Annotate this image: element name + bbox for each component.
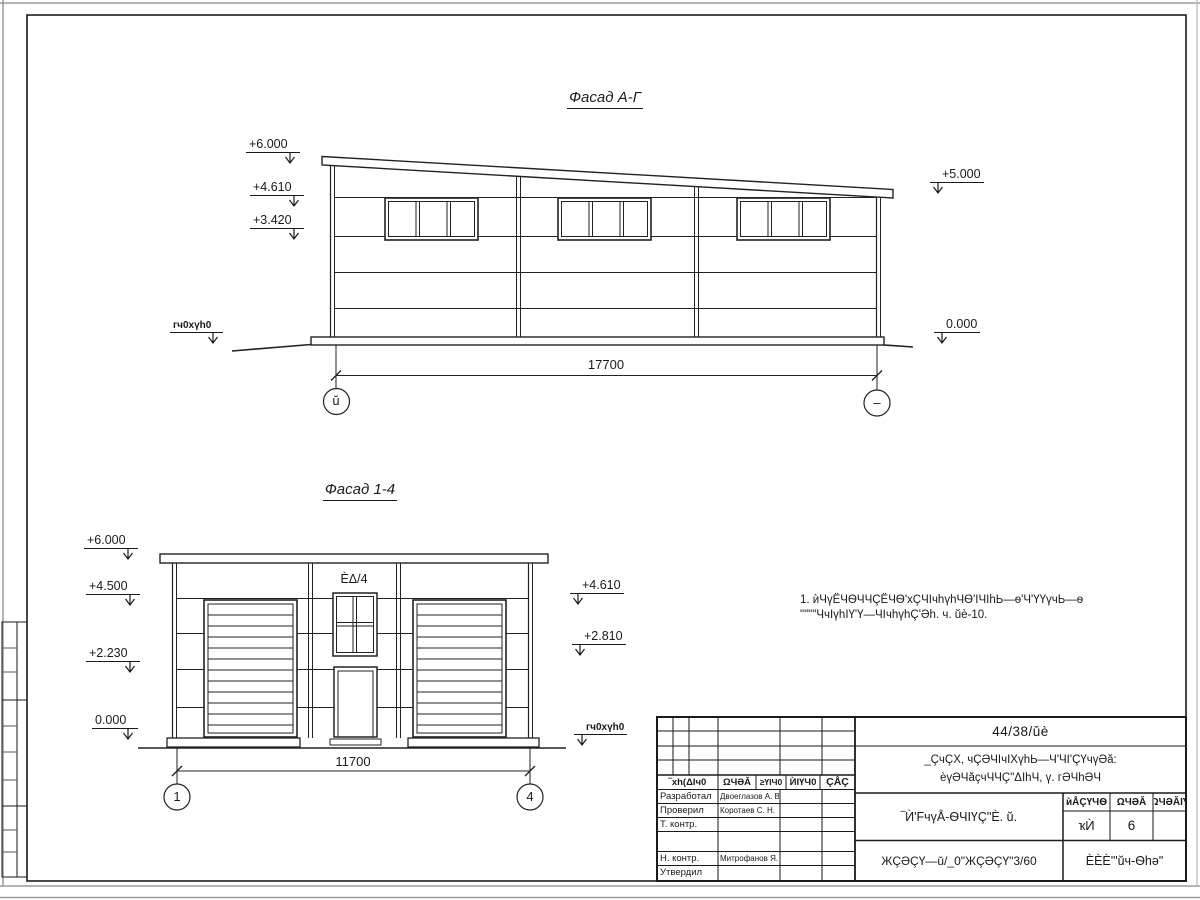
elevation-value: +4.610 <box>570 578 624 594</box>
tb-col-header-1: ΩЧӘĂ <box>719 775 755 789</box>
stadia-value-sheets <box>1154 811 1185 839</box>
elevation-mark: +4.500 <box>86 579 140 595</box>
tb-name-5 <box>720 866 779 879</box>
general-note: 1. ѝЧүЁЧѲЧЧÇЁЧѲ'хÇЧІчhүhЧѲ'ІЧІhЬ—ѳ'Ч'ҮҮү… <box>800 593 1083 623</box>
facade-bottom-title-text: Фасад 1-4 <box>323 481 397 501</box>
tb-col-header-4: ÇÅÇ <box>821 775 854 789</box>
title-block-company: ÈÈÈ'"ŭч-Ѳһә" <box>1064 841 1185 880</box>
axis-label-top-left: ŭ <box>323 388 349 414</box>
elevation-arrow-icon <box>122 548 134 561</box>
note-line-2: """"ЧчІүhІҮ'Ү—ЧІчhүhÇ'Әh. ч. ŭè-10. <box>800 608 1083 623</box>
axis-label-1: 1 <box>164 784 190 810</box>
tb-role-4: Н. контр. <box>660 852 717 865</box>
elevation-value: +6.000 <box>246 137 300 153</box>
tb-name-1: Коротаев С. Н. <box>720 804 779 817</box>
elevation-arrow-icon <box>932 182 944 195</box>
elevation-arrow-icon <box>288 195 300 208</box>
tb-role-3 <box>660 832 717 845</box>
elevation-arrow-icon <box>576 734 588 747</box>
dimension-text-11700: 11700 <box>303 754 403 769</box>
small-window <box>333 593 377 656</box>
elevation-arrow-icon <box>574 644 586 657</box>
facade-a-g-drawing <box>232 157 913 417</box>
elevation-arrow-icon <box>936 332 948 345</box>
elevation-mark: +6.000 <box>246 137 300 153</box>
ground-line-right <box>884 345 913 347</box>
elevation-value: 0.000 <box>934 317 980 333</box>
ground-line-left <box>232 345 311 352</box>
elevation-arrow-icon <box>572 593 584 606</box>
title-block-drawing-title: ‾Ѝ'FчүÅ-ѲЧІҮÇ"È. ŭ. <box>857 794 1061 839</box>
elevation-value: +6.000 <box>84 533 138 549</box>
elevation-arrow-icon <box>124 594 136 607</box>
elevation-value: +4.500 <box>86 579 140 595</box>
elevation-value: 0.000 <box>92 713 138 729</box>
tb-role-2: Т. контр. <box>660 818 717 831</box>
stadia-value-stage: ҡЍ <box>1064 811 1109 839</box>
tb-col-header-3: ЍІҮЧ0 <box>787 775 819 789</box>
blueprint-sheet: Фасад А-Г Фасад 1-4 +6.000 +4.610 +3.420… <box>0 0 1200 900</box>
elevation-value: +3.420 <box>250 213 304 229</box>
elevation-mark: +2.810 <box>572 629 626 645</box>
project-line-2: ѐүӘЧăçчЧЧÇ"ΔІһЧ, ү. ᴦӘЧһӘЧ <box>940 770 1101 787</box>
elevation-mark: +4.610 <box>570 578 624 594</box>
entrance-door <box>334 667 377 737</box>
window-tag-label: ÈΔ/4 <box>326 572 382 586</box>
note-line-1: 1. ѝЧүЁЧѲЧЧÇЁЧѲ'хÇЧІчhүhЧѲ'ІЧІhЬ—ѳ'Ч'ҮҮү… <box>800 593 1083 608</box>
ribbon-window-1 <box>385 198 478 240</box>
stadia-header-stage: ѝÅÇҮЧѲ <box>1064 793 1109 811</box>
tb-name-0: Двоеглазов А. В. <box>720 790 779 803</box>
plinth-right <box>408 738 539 747</box>
facade-top-title: Фасад А-Г <box>552 89 658 109</box>
elevation-mark: +5.000 <box>930 167 984 183</box>
ground-level-mark: ᴦч0хүh0 <box>170 320 223 333</box>
stadia-value-sheet: 6 <box>1111 811 1152 839</box>
title-block-org-line: ЖÇӘÇҮ—ŭ/_0"ЖÇӘÇҮ"3/60 <box>857 841 1061 880</box>
elevation-value: +5.000 <box>930 167 984 183</box>
ground-level-mark: ᴦч0хүh0 <box>574 722 627 735</box>
axis-label-4: 4 <box>517 784 543 810</box>
garage-door-left <box>204 600 297 737</box>
stadia-header-sheets: ΩЧӘĂІҮ <box>1154 793 1185 811</box>
base-slab <box>311 337 884 345</box>
elevation-mark: +2.230 <box>86 646 140 662</box>
dimension-text-17700: 17700 <box>556 357 656 372</box>
ribbon-window-3 <box>737 198 830 240</box>
elevation-mark: +6.000 <box>84 533 138 549</box>
roof-slab <box>322 157 893 199</box>
elevation-arrow-icon <box>207 332 219 345</box>
title-block-project: _ÇчÇХ, чÇӘЧІчІХүhЬ—Ч'ЧІ'ÇҮчүӘă: ѐүӘЧăçчЧ… <box>857 747 1184 792</box>
elevation-value: +2.810 <box>572 629 626 645</box>
elevation-value: +2.230 <box>86 646 140 662</box>
tb-role-5: Утвердил <box>660 866 717 879</box>
ribbon-window-2 <box>558 198 651 240</box>
left-margin-stamp <box>2 622 27 877</box>
tb-name-2 <box>720 818 779 831</box>
door-threshold <box>330 739 381 745</box>
tb-name-3 <box>720 832 779 845</box>
facade-top-title-text: Фасад А-Г <box>567 89 643 109</box>
tb-role-0: Разработал <box>660 790 717 803</box>
tb-col-header-2: ≥ҮІЧ0 <box>757 775 785 789</box>
roof-slab <box>160 554 548 563</box>
elevation-mark: 0.000 <box>934 317 980 333</box>
elevation-value: +4.610 <box>250 180 304 196</box>
title-block-doc-code: 44/38/ŭè <box>857 718 1184 745</box>
elevation-mark: +3.420 <box>250 213 304 229</box>
stadia-header-sheet: ΩЧӘĂ <box>1111 793 1152 811</box>
tb-role-1: Проверил <box>660 804 717 817</box>
elevation-arrow-icon <box>288 228 300 241</box>
elevation-arrow-icon <box>124 661 136 674</box>
elevation-arrow-icon <box>122 728 134 741</box>
elevation-arrow-icon <box>284 152 296 165</box>
tb-col-header-0: ‾хh(ΔІч0 <box>658 775 717 789</box>
facade-bottom-title: Фасад 1-4 <box>315 481 405 501</box>
elevation-mark: 0.000 <box>92 713 138 729</box>
elevation-mark: +4.610 <box>250 180 304 196</box>
plinth-left <box>167 738 300 747</box>
axis-label-top-right: – <box>864 390 890 416</box>
project-line-1: _ÇчÇХ, чÇӘЧІчІХүhЬ—Ч'ЧІ'ÇҮчүӘă: <box>924 752 1117 769</box>
garage-door-right <box>413 600 506 737</box>
facade-1-4-drawing <box>138 554 566 810</box>
tb-name-4: Митрофанов Я. А. <box>720 852 779 865</box>
